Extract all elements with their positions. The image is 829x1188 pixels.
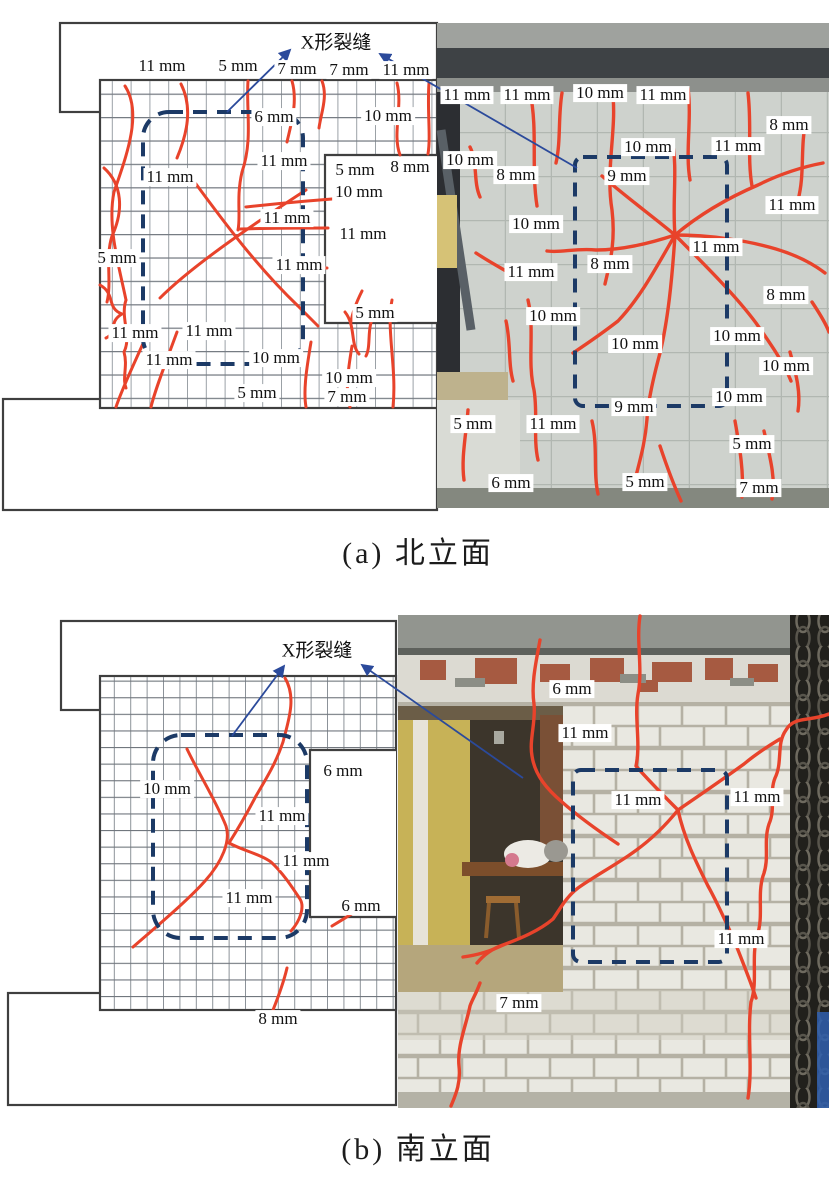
panel-a-caption: (a) 北立面 <box>342 528 494 572</box>
photo-a-beam <box>437 23 829 48</box>
panel-b-photo <box>398 615 829 1108</box>
footing-outline-a <box>3 399 437 510</box>
figure-page: 11 mm5 mm7 mm7 mm11 mm6 mm10 mm11 mm11 m… <box>0 0 829 1188</box>
photo-b-yellow-wall <box>398 720 470 945</box>
opening-b <box>310 750 396 917</box>
photo-b-beam <box>398 615 829 648</box>
opening-a <box>325 155 437 323</box>
photo-a-floor <box>437 488 829 508</box>
panel-b-diagram <box>8 621 396 1105</box>
figure-art <box>0 0 829 1188</box>
panel-a-photo <box>437 23 829 508</box>
panel-b-caption: (b) 南立面 <box>341 1124 494 1168</box>
panel-a-diagram <box>3 23 437 510</box>
xcrack-callout-label-b: X形裂缝 <box>280 636 355 663</box>
xcrack-callout-label-a: X形裂缝 <box>299 28 374 55</box>
photo-b-stool <box>486 896 520 903</box>
